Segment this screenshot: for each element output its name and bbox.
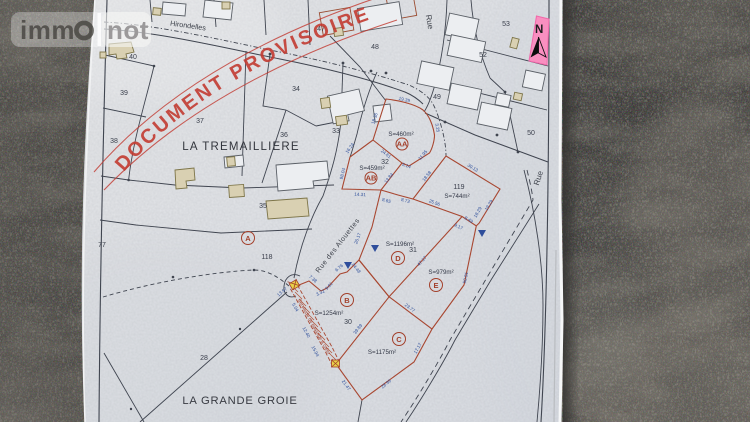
svg-text:33: 33: [332, 128, 340, 135]
svg-text:E: E: [433, 281, 438, 290]
svg-text:AB: AB: [366, 174, 377, 183]
svg-text:37: 37: [196, 118, 204, 125]
svg-text:31: 31: [409, 247, 417, 254]
svg-text:S=1175m²: S=1175m²: [368, 349, 396, 356]
svg-text:35: 35: [259, 203, 267, 210]
svg-text:49: 49: [433, 94, 441, 101]
svg-text:36: 36: [280, 132, 288, 139]
svg-text:LA GRANDE GROIE: LA GRANDE GROIE: [182, 395, 297, 407]
svg-text:52: 52: [479, 52, 487, 59]
svg-text:S=1254m²: S=1254m²: [315, 310, 344, 317]
svg-text:77: 77: [98, 242, 106, 249]
svg-text:S=1196m²: S=1196m²: [386, 241, 414, 248]
svg-text:34: 34: [292, 86, 300, 93]
svg-text:38: 38: [110, 138, 118, 145]
svg-text:48: 48: [371, 44, 379, 51]
svg-text:C: C: [396, 335, 402, 344]
svg-text:50: 50: [527, 130, 535, 137]
svg-text:39: 39: [120, 90, 128, 97]
svg-text:AA: AA: [397, 140, 408, 149]
svg-text:S=744m²: S=744m²: [444, 193, 469, 200]
svg-text:D: D: [395, 254, 401, 263]
svg-text:A: A: [245, 234, 251, 243]
svg-text:N: N: [535, 24, 543, 36]
svg-text:119: 119: [453, 184, 464, 191]
svg-text:S=460m²: S=460m²: [388, 131, 413, 138]
svg-text:118: 118: [261, 254, 272, 261]
svg-text:40: 40: [129, 54, 137, 61]
svg-text:S=979m²: S=979m²: [428, 269, 453, 276]
svg-text:30: 30: [344, 319, 352, 326]
svg-text:B: B: [344, 296, 350, 305]
svg-text:14.31: 14.31: [354, 192, 366, 197]
svg-text:53: 53: [502, 21, 510, 28]
svg-text:S=459m²: S=459m²: [359, 165, 384, 172]
svg-text:not: not: [107, 15, 149, 45]
svg-text:28: 28: [200, 355, 208, 362]
svg-text:LA TREMAILLIERE: LA TREMAILLIERE: [182, 141, 300, 153]
svg-text:imm: imm: [20, 15, 75, 45]
